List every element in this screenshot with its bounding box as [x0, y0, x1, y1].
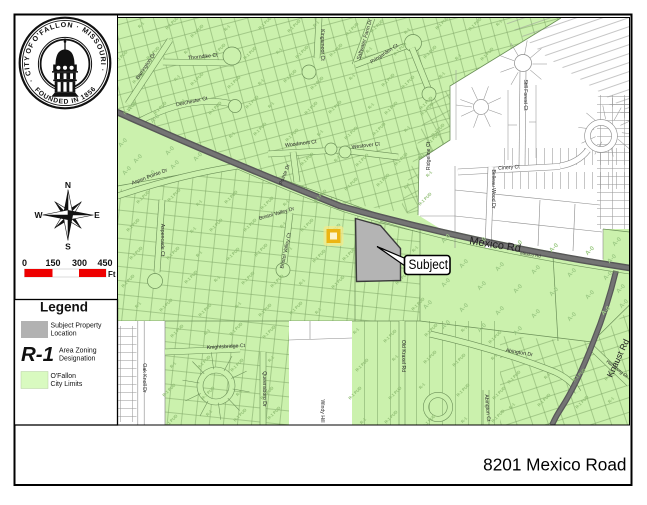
svg-text:Ft: Ft [108, 270, 116, 279]
svg-text:Windy Hill: Windy Hill [319, 399, 325, 422]
svg-text:Location: Location [51, 331, 77, 338]
svg-text:O'Fallon: O'Fallon [51, 373, 77, 380]
svg-text:S: S [65, 242, 71, 252]
svg-text:E: E [94, 210, 100, 220]
svg-text:8201 Mexico Road: 8201 Mexico Road [483, 455, 626, 475]
svg-text:Legend: Legend [40, 300, 88, 315]
svg-text:0: 0 [22, 258, 27, 268]
svg-text:Area Zoning: Area Zoning [59, 348, 97, 355]
svg-text:Designation: Designation [59, 356, 96, 363]
svg-text:Aspencade Ct: Aspencade Ct [159, 224, 165, 257]
svg-text:Queensboro Dr: Queensboro Dr [261, 371, 267, 407]
svg-text:300: 300 [72, 258, 87, 268]
svg-text:City Limits: City Limits [51, 381, 83, 388]
svg-text:Subject: Subject [409, 257, 449, 272]
svg-text:450: 450 [97, 258, 112, 268]
svg-text:Kingsmoor Ct: Kingsmoor Ct [319, 29, 325, 61]
svg-text:Old Kraxel Rd: Old Kraxel Rd [400, 340, 406, 372]
svg-text:N: N [65, 180, 71, 190]
svg-text:Ridgeline Ct: Ridgeline Ct [426, 141, 432, 170]
svg-text:150: 150 [45, 258, 60, 268]
svg-text:W: W [34, 210, 43, 220]
svg-text:Oak Knoll Dr: Oak Knoll Dr [141, 363, 147, 393]
svg-text:Subject Property: Subject Property [51, 323, 102, 330]
svg-text:Belleau Wood Dr: Belleau Wood Dr [490, 169, 496, 208]
svg-text:R-1: R-1 [21, 343, 54, 366]
svg-text:Still Forest Ct: Still Forest Ct [522, 79, 528, 111]
